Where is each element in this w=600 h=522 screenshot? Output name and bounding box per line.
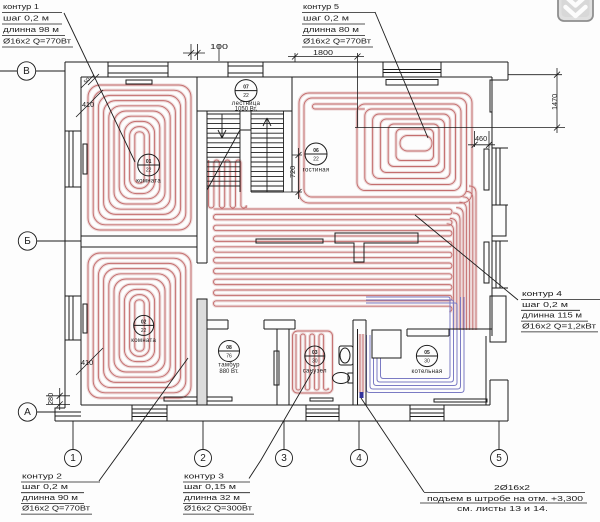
svg-text:22: 22 (146, 168, 152, 174)
svg-text:460: 460 (475, 134, 487, 143)
svg-text:4: 4 (356, 453, 362, 464)
svg-text:длинна 32 м: длинна 32 м (184, 493, 240, 502)
svg-text:Ø16х2 Q=1,2кВт: Ø16х2 Q=1,2кВт (522, 321, 597, 330)
svg-text:30: 30 (312, 359, 318, 365)
svg-text:длинна 115 м: длинна 115 м (522, 311, 582, 320)
svg-text:подъем в штробе на отм. +3,300: подъем в штробе на отм. +3,300 (427, 494, 583, 503)
svg-text:410: 410 (81, 358, 93, 367)
svg-text:шаг 0,2 м: шаг 0,2 м (3, 14, 49, 23)
svg-text:шаг 0,15 м: шаг 0,15 м (184, 482, 236, 491)
svg-text:1800: 1800 (313, 48, 333, 57)
svg-text:В: В (23, 66, 30, 77)
svg-text:шаг 0,2 м: шаг 0,2 м (303, 14, 349, 23)
svg-text:контур 5: контур 5 (303, 2, 339, 11)
svg-text:06: 06 (313, 148, 319, 154)
svg-text:22: 22 (141, 328, 147, 334)
svg-text:шаг 0,2 м: шаг 0,2 м (522, 300, 568, 309)
svg-text:шаг 0,2 м: шаг 0,2 м (22, 482, 68, 491)
svg-text:комната: комната (131, 338, 156, 344)
svg-text:07: 07 (243, 85, 249, 91)
svg-text:2: 2 (200, 453, 206, 464)
svg-text:Ø16х2 Q=300Вт: Ø16х2 Q=300Вт (184, 504, 253, 513)
svg-text:тамбур: тамбур (218, 363, 240, 369)
svg-text:котельная: котельная (412, 369, 443, 375)
svg-text:76: 76 (226, 354, 232, 360)
svg-text:комната: комната (136, 178, 161, 184)
svg-text:08: 08 (226, 345, 232, 351)
svg-text:100: 100 (210, 42, 228, 51)
svg-text:Ø16х2 Q=770Вт: Ø16х2 Q=770Вт (3, 37, 72, 46)
svg-text:контур 1: контур 1 (3, 2, 39, 11)
svg-text:контур 3: контур 3 (184, 472, 224, 481)
svg-text:1: 1 (70, 453, 76, 464)
svg-text:А: А (24, 407, 31, 418)
svg-text:Ø16х2 Q=770Вт: Ø16х2 Q=770Вт (303, 37, 372, 46)
svg-text:длинна 90 м: длинна 90 м (22, 493, 78, 502)
svg-text:контур 4: контур 4 (522, 289, 562, 298)
svg-text:01: 01 (146, 159, 152, 165)
svg-text:контур 2: контур 2 (22, 472, 62, 481)
svg-text:1470: 1470 (550, 94, 559, 110)
svg-text:Б: Б (24, 236, 31, 247)
svg-text:280: 280 (46, 393, 55, 405)
svg-text:30: 30 (424, 359, 430, 365)
svg-text:410: 410 (82, 100, 94, 109)
svg-text:1050 Вт.: 1050 Вт. (235, 107, 258, 113)
svg-text:22: 22 (313, 157, 319, 163)
svg-text:см. листы 13 и 14.: см. листы 13 и 14. (457, 504, 548, 513)
svg-text:02: 02 (141, 319, 147, 325)
svg-text:22: 22 (243, 93, 249, 99)
svg-text:05: 05 (424, 350, 430, 356)
svg-text:720: 720 (288, 166, 297, 178)
svg-text:санузел: санузел (303, 369, 327, 375)
svg-text:гостиная: гостиная (303, 168, 330, 174)
svg-text:3: 3 (281, 453, 287, 464)
svg-text:2Ø16х2: 2Ø16х2 (494, 483, 530, 492)
svg-text:Ø16х2 Q=770Вт: Ø16х2 Q=770Вт (22, 504, 91, 513)
svg-text:03: 03 (312, 350, 318, 356)
svg-text:5: 5 (496, 453, 502, 464)
svg-text:880 Вт.: 880 Вт. (219, 369, 239, 375)
svg-text:длинна 80 м: длинна 80 м (303, 25, 359, 34)
svg-text:длинна 98 м: длинна 98 м (3, 25, 59, 34)
